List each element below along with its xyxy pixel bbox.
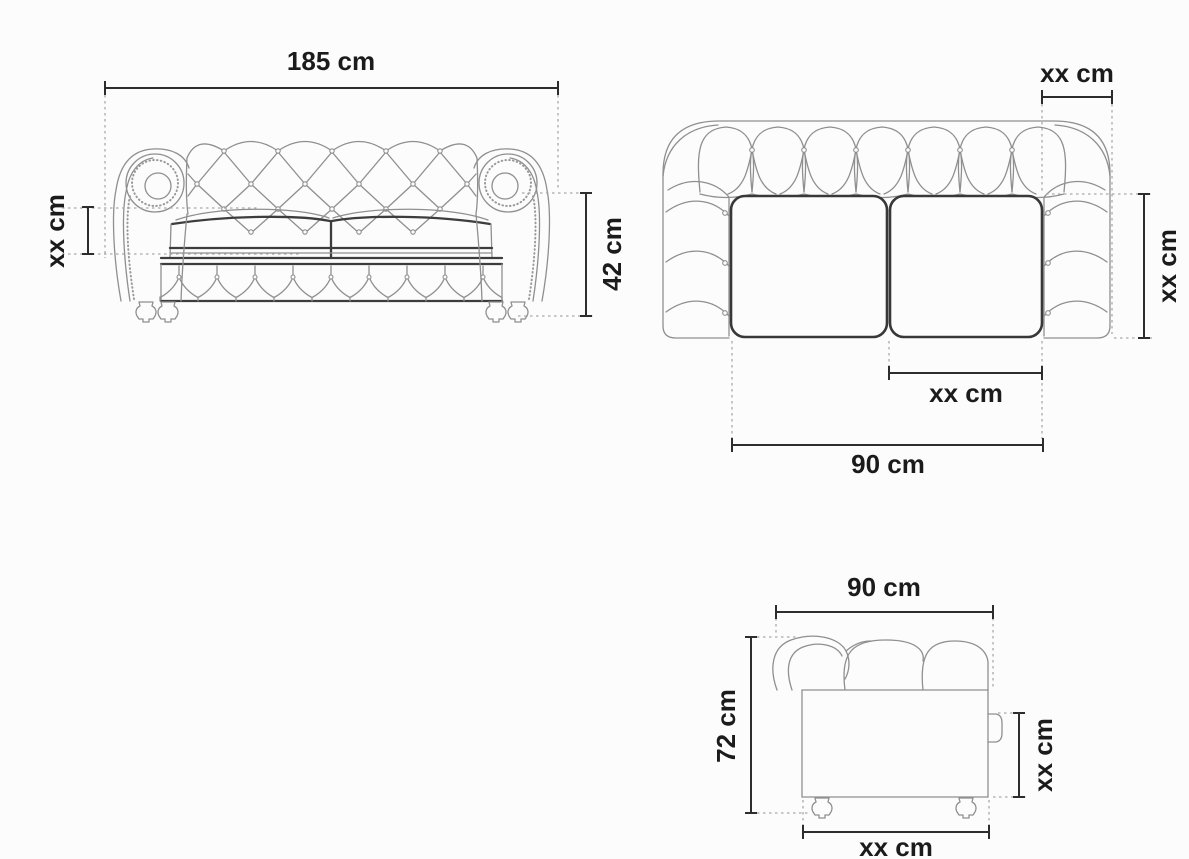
top-armrest-width-label: xx cm bbox=[1040, 58, 1114, 88]
seat-cushion-right bbox=[890, 196, 1042, 337]
top-seat-depth-label: xx cm bbox=[1152, 229, 1182, 303]
front-base-skirt bbox=[160, 258, 502, 301]
top-seat-depth-dim: xx cm bbox=[1046, 194, 1182, 338]
side-depth-label: 90 cm bbox=[847, 572, 921, 602]
top-cushion-width-label: xx cm bbox=[929, 378, 1003, 408]
side-cushions bbox=[844, 640, 988, 690]
top-seat-width-label: 90 cm bbox=[851, 449, 925, 479]
extension-line bbox=[757, 637, 808, 813]
top-seat-width-dim: 90 cm bbox=[732, 341, 1043, 479]
front-width-label: 185 cm bbox=[287, 46, 375, 76]
front-view: 185 cm xx cm 42 cm bbox=[40, 46, 627, 322]
extension-line bbox=[993, 713, 1027, 797]
extension-line bbox=[1046, 194, 1152, 338]
top-cushion-width-dim: xx cm bbox=[889, 341, 1042, 439]
side-arm-scroll bbox=[773, 636, 871, 690]
top-view-drawing bbox=[663, 121, 1110, 338]
extension-line bbox=[1042, 104, 1112, 334]
blueprint-svg: 185 cm xx cm 42 cm bbox=[0, 0, 1189, 859]
side-base-depth-dim: xx cm bbox=[803, 800, 989, 859]
side-legs bbox=[812, 798, 976, 818]
side-back-height-dim: xx cm bbox=[993, 713, 1058, 797]
top-view: xx cm xx cm xx cm 90 cm bbox=[663, 58, 1182, 479]
front-legs bbox=[136, 302, 528, 322]
seat-cushion-left bbox=[731, 196, 887, 337]
dimension-drawing-canvas: 185 cm xx cm 42 cm bbox=[0, 0, 1189, 859]
front-view-drawing bbox=[114, 142, 550, 323]
front-arm-height-label: 42 cm bbox=[597, 217, 627, 291]
side-base-depth-label: xx cm bbox=[859, 832, 933, 859]
side-back-height-label: xx cm bbox=[1028, 718, 1058, 792]
side-view-drawing bbox=[773, 636, 1002, 818]
side-height-label: 72 cm bbox=[711, 689, 741, 763]
front-seat-height-label: xx cm bbox=[40, 194, 70, 268]
side-body bbox=[802, 690, 1002, 797]
top-right-arm bbox=[1044, 182, 1107, 336]
front-seat-cushions bbox=[170, 209, 492, 258]
side-depth-dim: 90 cm bbox=[776, 572, 993, 688]
side-view: 90 cm 72 cm xx cm xx cm bbox=[711, 572, 1058, 859]
front-right-arm bbox=[474, 149, 549, 301]
top-back-tufting bbox=[698, 127, 1065, 198]
side-height-dim: 72 cm bbox=[711, 637, 808, 813]
top-left-arm bbox=[666, 182, 729, 336]
extension-line bbox=[776, 618, 993, 688]
